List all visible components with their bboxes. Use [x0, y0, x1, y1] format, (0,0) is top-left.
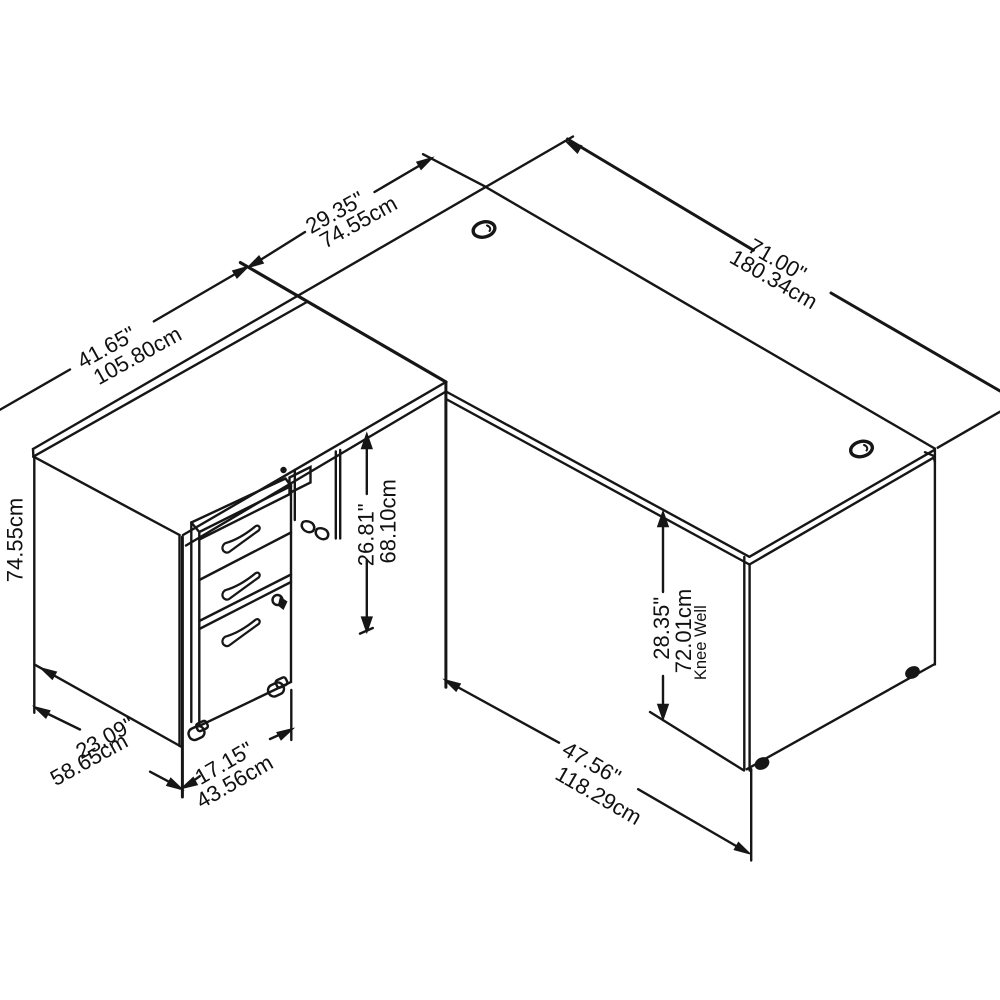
svg-text:68.10cm: 68.10cm [375, 479, 400, 563]
svg-text:Knee Well: Knee Well [692, 605, 710, 680]
svg-text:74.55cm: 74.55cm [3, 498, 28, 582]
